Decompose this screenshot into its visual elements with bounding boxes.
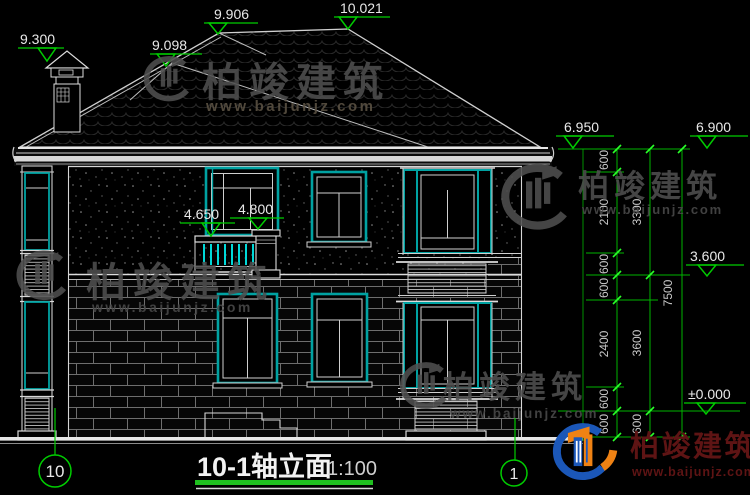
- svg-text:600: 600: [597, 150, 611, 170]
- elevation-value: 4.650: [184, 206, 219, 222]
- window-2f-center: [307, 172, 371, 247]
- svg-text:www.baijunjz.com: www.baijunjz.com: [581, 202, 723, 217]
- elevation-value: 3.600: [690, 248, 725, 264]
- brand-name: 柏竣建筑: [630, 429, 750, 463]
- title-underline-green: [195, 480, 373, 485]
- title-text: 10-1轴立面: [197, 451, 332, 482]
- ground-line: [0, 437, 583, 444]
- elevation-value: 10.021: [340, 0, 383, 16]
- svg-text:柏竣建筑: 柏竣建筑: [578, 169, 722, 204]
- left-stair-column: [18, 166, 56, 440]
- cad-elevation-screenshot: 9.300 9.098 9.906 10.021 6.950 6.900 4.6…: [0, 0, 750, 495]
- title-scale: 1:100: [327, 458, 377, 480]
- svg-text:7500: 7500: [661, 279, 675, 306]
- bay-window-2f: [396, 168, 498, 302]
- elevation-value: 6.900: [696, 119, 731, 135]
- elevation-marker-second-floor: [686, 265, 744, 276]
- svg-text:3600: 3600: [630, 329, 644, 356]
- drawing-title: 10-1轴立面 1:100: [195, 451, 377, 489]
- svg-text:柏竣建筑: 柏竣建筑: [443, 370, 587, 405]
- elevation-marker-eave-far-right: [690, 136, 748, 148]
- svg-text:10: 10: [46, 462, 65, 481]
- elevation-value: ±0.000: [688, 386, 731, 402]
- watermark-right-middle: 柏竣建筑 www.baijunjz.com: [505, 166, 723, 225]
- svg-text:www.baijunjz.com: www.baijunjz.com: [91, 299, 253, 315]
- elevation-marker-ground: [684, 403, 746, 414]
- elevation-value: 4.800: [238, 201, 273, 217]
- svg-text:www.baijunjz.com: www.baijunjz.com: [205, 98, 375, 115]
- elevation-marker-ridge-main: [334, 17, 390, 29]
- elevation-value: 6.950: [564, 119, 599, 135]
- watermark-logo-colored: 柏竣建筑 www.baijunjz.com: [557, 426, 750, 479]
- elevation-value: 9.300: [20, 31, 55, 47]
- elevation-value: 9.906: [214, 6, 249, 22]
- svg-text:600: 600: [597, 254, 611, 274]
- eave-cornice: [13, 147, 554, 167]
- svg-text:600: 600: [597, 278, 611, 298]
- window-1f-center: [307, 294, 372, 387]
- svg-text:2400: 2400: [597, 330, 611, 357]
- elevation-value: 9.098: [152, 37, 187, 53]
- svg-text:www.baijunjz.com: www.baijunjz.com: [449, 406, 599, 421]
- watermark-left-middle: 柏竣建筑 www.baijunjz.com: [20, 252, 274, 315]
- elevation-marker-eave-right: [556, 136, 614, 148]
- elevation-drawing: 9.300 9.098 9.906 10.021 6.950 6.900 4.6…: [0, 0, 750, 495]
- brand-url: www.baijunjz.com: [631, 465, 750, 479]
- svg-text:600: 600: [597, 389, 611, 409]
- svg-text:1: 1: [510, 466, 519, 483]
